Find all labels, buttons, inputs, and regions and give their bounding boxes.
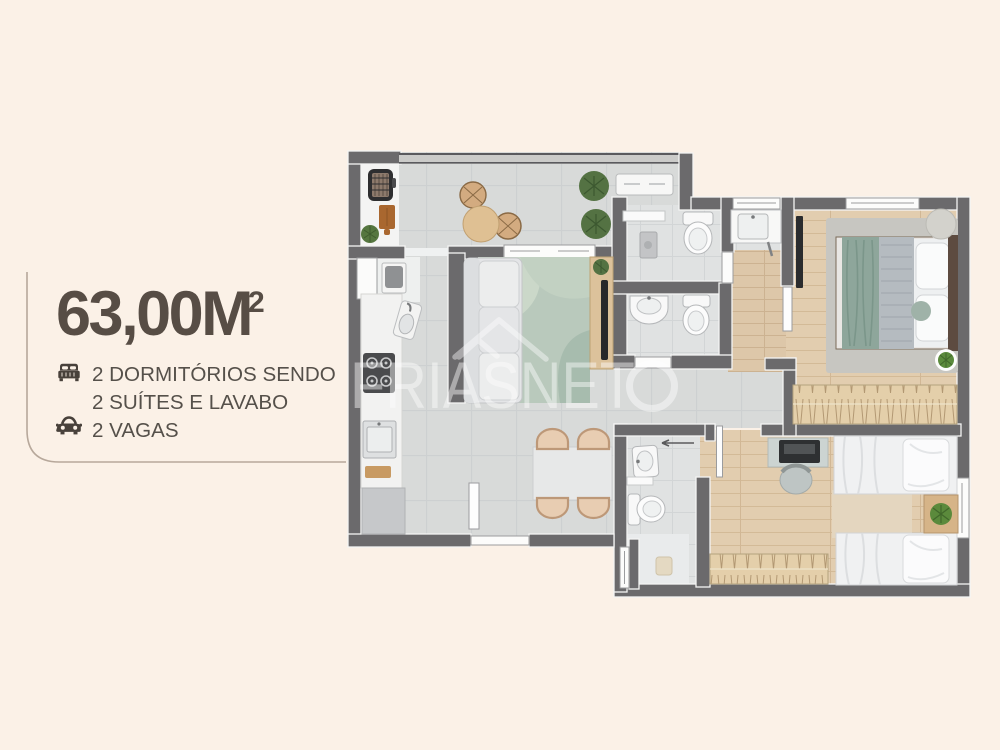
svg-text:FRIASNET: FRIASNET [350, 348, 635, 422]
svg-text:2 VAGAS: 2 VAGAS [92, 419, 179, 442]
svg-text:63,00M: 63,00M [56, 279, 251, 349]
svg-text:2 DORMITÓRIOS SENDO: 2 DORMITÓRIOS SENDO [92, 363, 336, 386]
svg-text:2 SUÍTES E LAVABO: 2 SUÍTES E LAVABO [92, 391, 288, 414]
svg-text:2: 2 [248, 286, 265, 319]
